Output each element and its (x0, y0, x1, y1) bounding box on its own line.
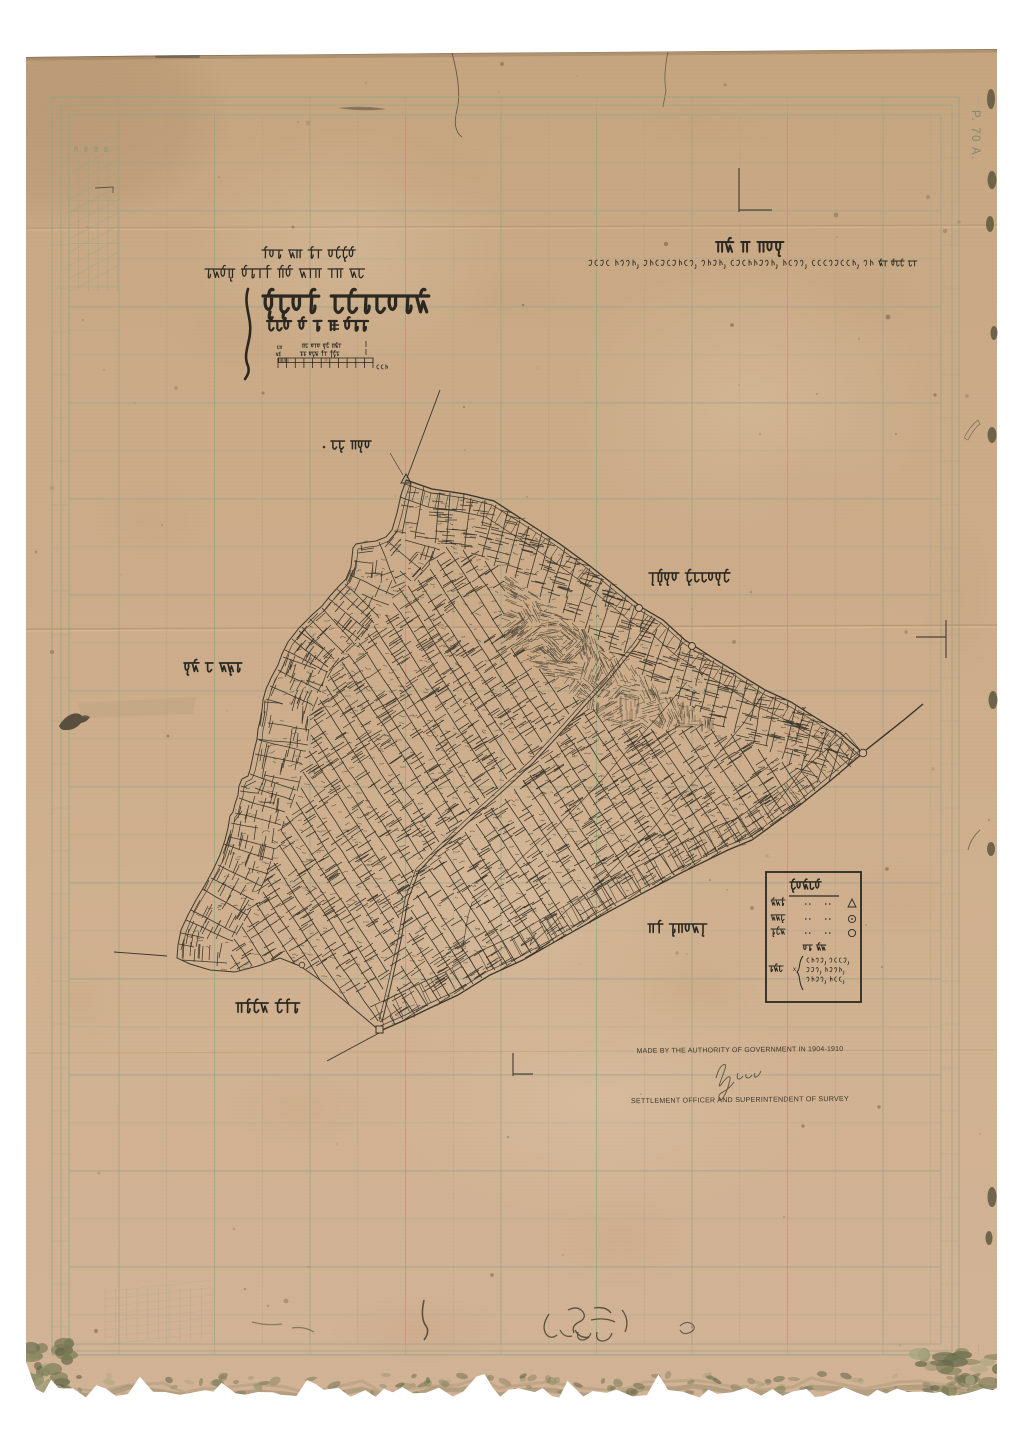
svg-text:x: x (793, 967, 796, 973)
svg-text:40: 40 (84, 146, 90, 152)
svg-text:80: 80 (104, 146, 110, 152)
svg-text:30: 30 (74, 146, 80, 152)
svg-text:60: 60 (94, 146, 100, 152)
svg-text:P. 70 A.: P. 70 A. (969, 110, 981, 161)
